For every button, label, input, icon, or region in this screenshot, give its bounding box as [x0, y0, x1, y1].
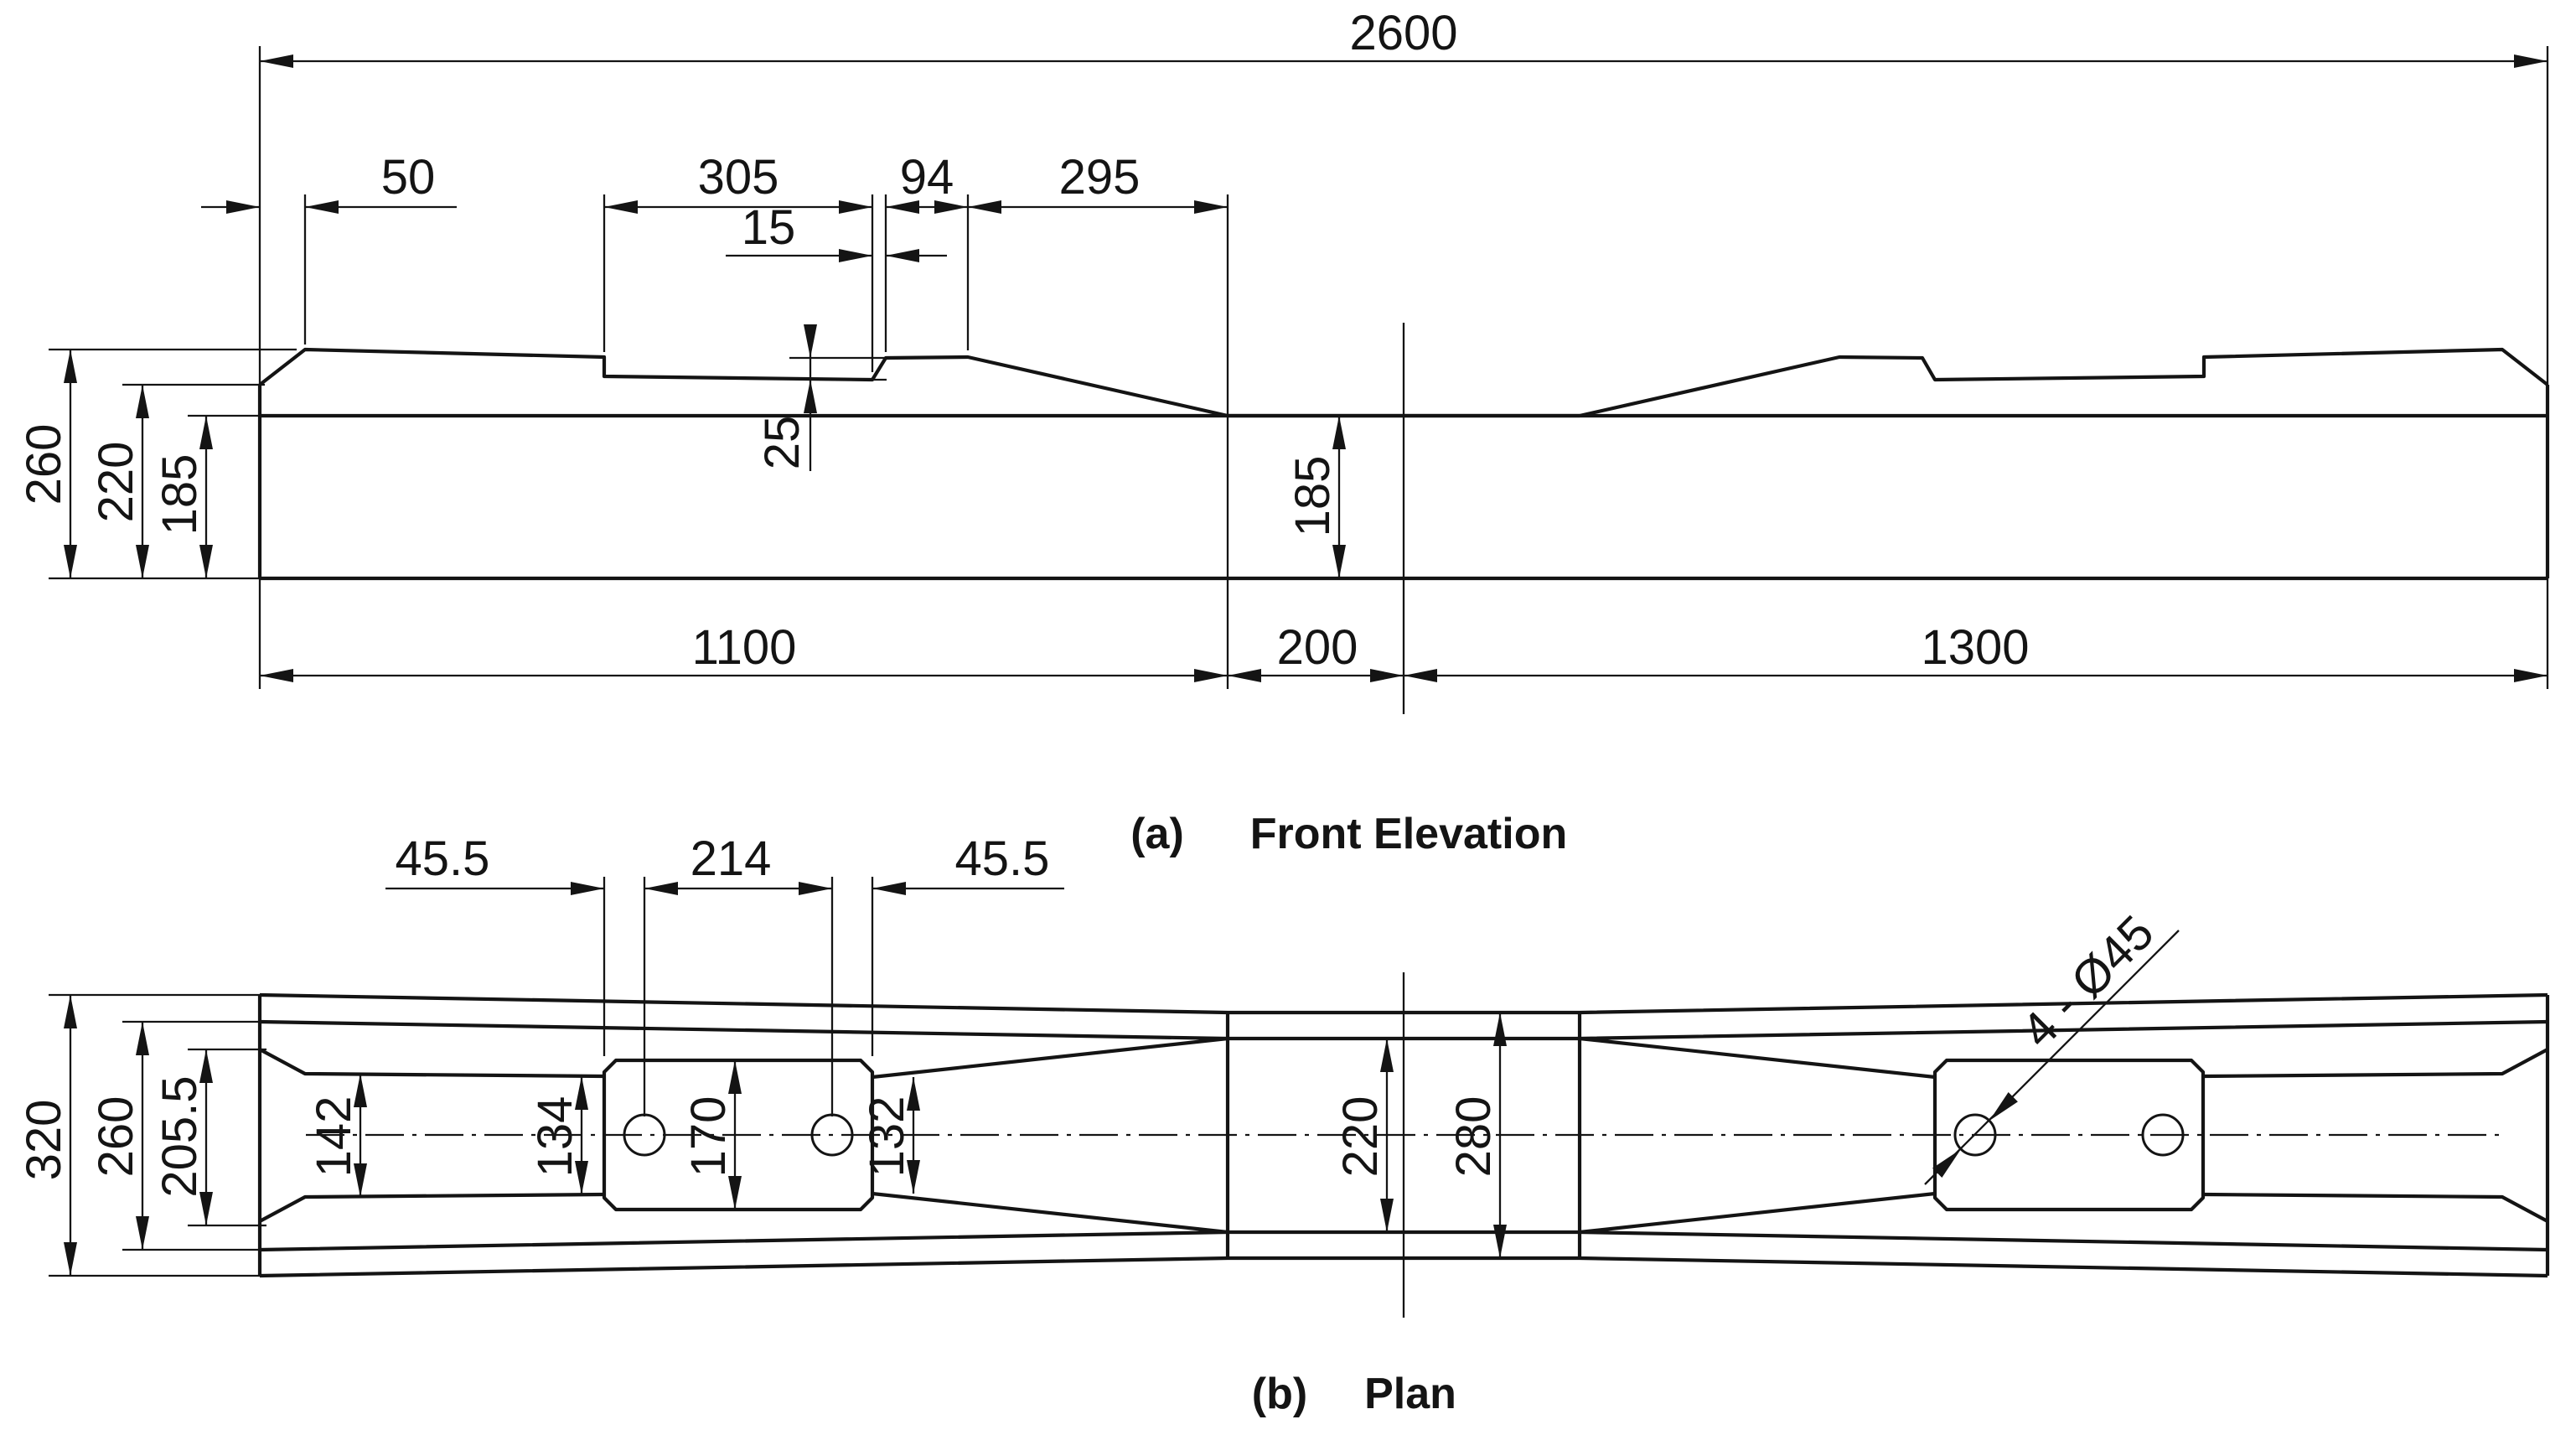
- fe-label-295: 295: [1059, 150, 1141, 205]
- fe-label-260: 260: [17, 424, 71, 505]
- pl-arrow-leader-upper: [1984, 1092, 2018, 1126]
- pl-label-142: 142: [307, 1096, 361, 1178]
- pl-arrow-455-right: [872, 882, 906, 895]
- fe-label-1300: 1300: [1921, 620, 2029, 675]
- pl-arrow-leader-lower: [1932, 1144, 1966, 1178]
- pl-label-280: 280: [1446, 1096, 1501, 1178]
- fe-arrow-2600-right: [2514, 54, 2548, 68]
- pl-topface-left-top: [260, 1049, 604, 1076]
- fe-label-220: 220: [89, 442, 143, 523]
- pl-label-455-right: 45.5: [955, 831, 1050, 886]
- pl-topface-taper-left-top: [872, 1039, 1228, 1077]
- fe-arrow-295-left: [968, 200, 1001, 214]
- pl-arrow-280-bottom: [1493, 1225, 1507, 1258]
- pl-arrow-260-bottom: [136, 1216, 149, 1250]
- fe-arrow-220-top: [136, 385, 149, 418]
- fe-arrow-185M-top: [1332, 416, 1346, 449]
- pl-arrow-280-top: [1493, 1013, 1507, 1046]
- pl-label-455-left: 45.5: [396, 831, 490, 886]
- fe-label-25: 25: [755, 416, 810, 470]
- fe-arrow-25-top: [804, 324, 817, 358]
- fe-label-50: 50: [381, 150, 436, 205]
- fe-arrow-200-left: [1228, 669, 1261, 682]
- fe-label-185-mid: 185: [1285, 456, 1340, 537]
- pl-topface-left-bottom: [260, 1194, 604, 1221]
- pl-arrow-455-left: [571, 882, 604, 895]
- fe-arrow-185L-bottom: [199, 545, 213, 578]
- fe-arrow-305-right: [839, 200, 872, 214]
- pl-arrow-214-right: [799, 882, 832, 895]
- fe-arrow-305-left: [604, 200, 638, 214]
- pl-topface-right-bottom: [2203, 1194, 2548, 1221]
- fe-label-2600: 2600: [1349, 6, 1457, 60]
- fe-label-1100: 1100: [692, 620, 797, 675]
- pl-label-214: 214: [691, 831, 772, 886]
- pl-arrow-170-bottom: [728, 1176, 742, 1210]
- fe-arrow-200-right: [1370, 669, 1404, 682]
- fe-arrow-50-left: [226, 200, 260, 214]
- pl-label-132: 132: [860, 1096, 914, 1178]
- fe-arrow-1100-left: [260, 669, 293, 682]
- caption-b-text: Plan: [1364, 1370, 1456, 1418]
- fe-arrow-15-right: [886, 249, 919, 262]
- pl-topface-taper-left-bottom: [872, 1194, 1228, 1232]
- fe-label-94: 94: [900, 150, 954, 205]
- fe-arrow-25-bottom: [804, 380, 817, 413]
- pl-label-holes-callout: 4 - Ø45: [2011, 905, 2165, 1059]
- fe-arrow-260-top: [64, 350, 77, 383]
- fe-label-15: 15: [742, 200, 796, 255]
- pl-label-2055: 205.5: [153, 1075, 207, 1197]
- pl-arrow-320-top: [64, 995, 77, 1028]
- caption-b-index: (b): [1252, 1370, 1307, 1418]
- pl-topface-right-top: [2203, 1049, 2548, 1076]
- pl-label-320: 320: [17, 1100, 71, 1181]
- fe-arrow-185M-bottom: [1332, 545, 1346, 578]
- pl-arrow-260-top: [136, 1022, 149, 1055]
- fe-arrow-50-right: [305, 200, 339, 214]
- pl-label-220: 220: [1333, 1096, 1388, 1178]
- fe-arrow-220-bottom: [136, 545, 149, 578]
- fe-arrow-1300-left: [1404, 669, 1437, 682]
- pl-arrow-220-top: [1380, 1039, 1394, 1072]
- fe-arrow-1100-right: [1194, 669, 1228, 682]
- pl-arrow-214-left: [644, 882, 678, 895]
- fe-arrow-295-right: [1194, 200, 1228, 214]
- fe-arrow-15-left: [839, 249, 872, 262]
- pl-arrow-320-bottom: [64, 1242, 77, 1276]
- pl-arrow-170-top: [728, 1060, 742, 1094]
- pl-label-170: 170: [681, 1096, 736, 1178]
- fe-arrow-1300-right: [2514, 669, 2548, 682]
- pl-label-260: 260: [89, 1096, 143, 1178]
- pl-topface-taper-right-bottom: [1580, 1194, 1935, 1232]
- fe-arrow-2600-left: [260, 54, 293, 68]
- fe-label-185-left: 185: [153, 454, 207, 536]
- sleeper-dimension-drawing: 2600503059429515252602201851851100200130…: [0, 0, 2576, 1435]
- fe-label-200: 200: [1277, 620, 1358, 675]
- pl-arrow-220-bottom: [1380, 1199, 1394, 1232]
- pl-leader-holes: [1925, 930, 2179, 1184]
- caption-a-text: Front Elevation: [1250, 810, 1567, 858]
- technical-drawing-page: 2600503059429515252602201851851100200130…: [0, 0, 2576, 1435]
- fe-arrow-260-bottom: [64, 545, 77, 578]
- fe-label-305: 305: [698, 150, 779, 205]
- pl-label-134: 134: [528, 1096, 582, 1178]
- caption-a-index: (a): [1130, 810, 1184, 858]
- fe-arrow-185L-top: [199, 416, 213, 449]
- pl-topface-taper-right-top: [1580, 1039, 1935, 1077]
